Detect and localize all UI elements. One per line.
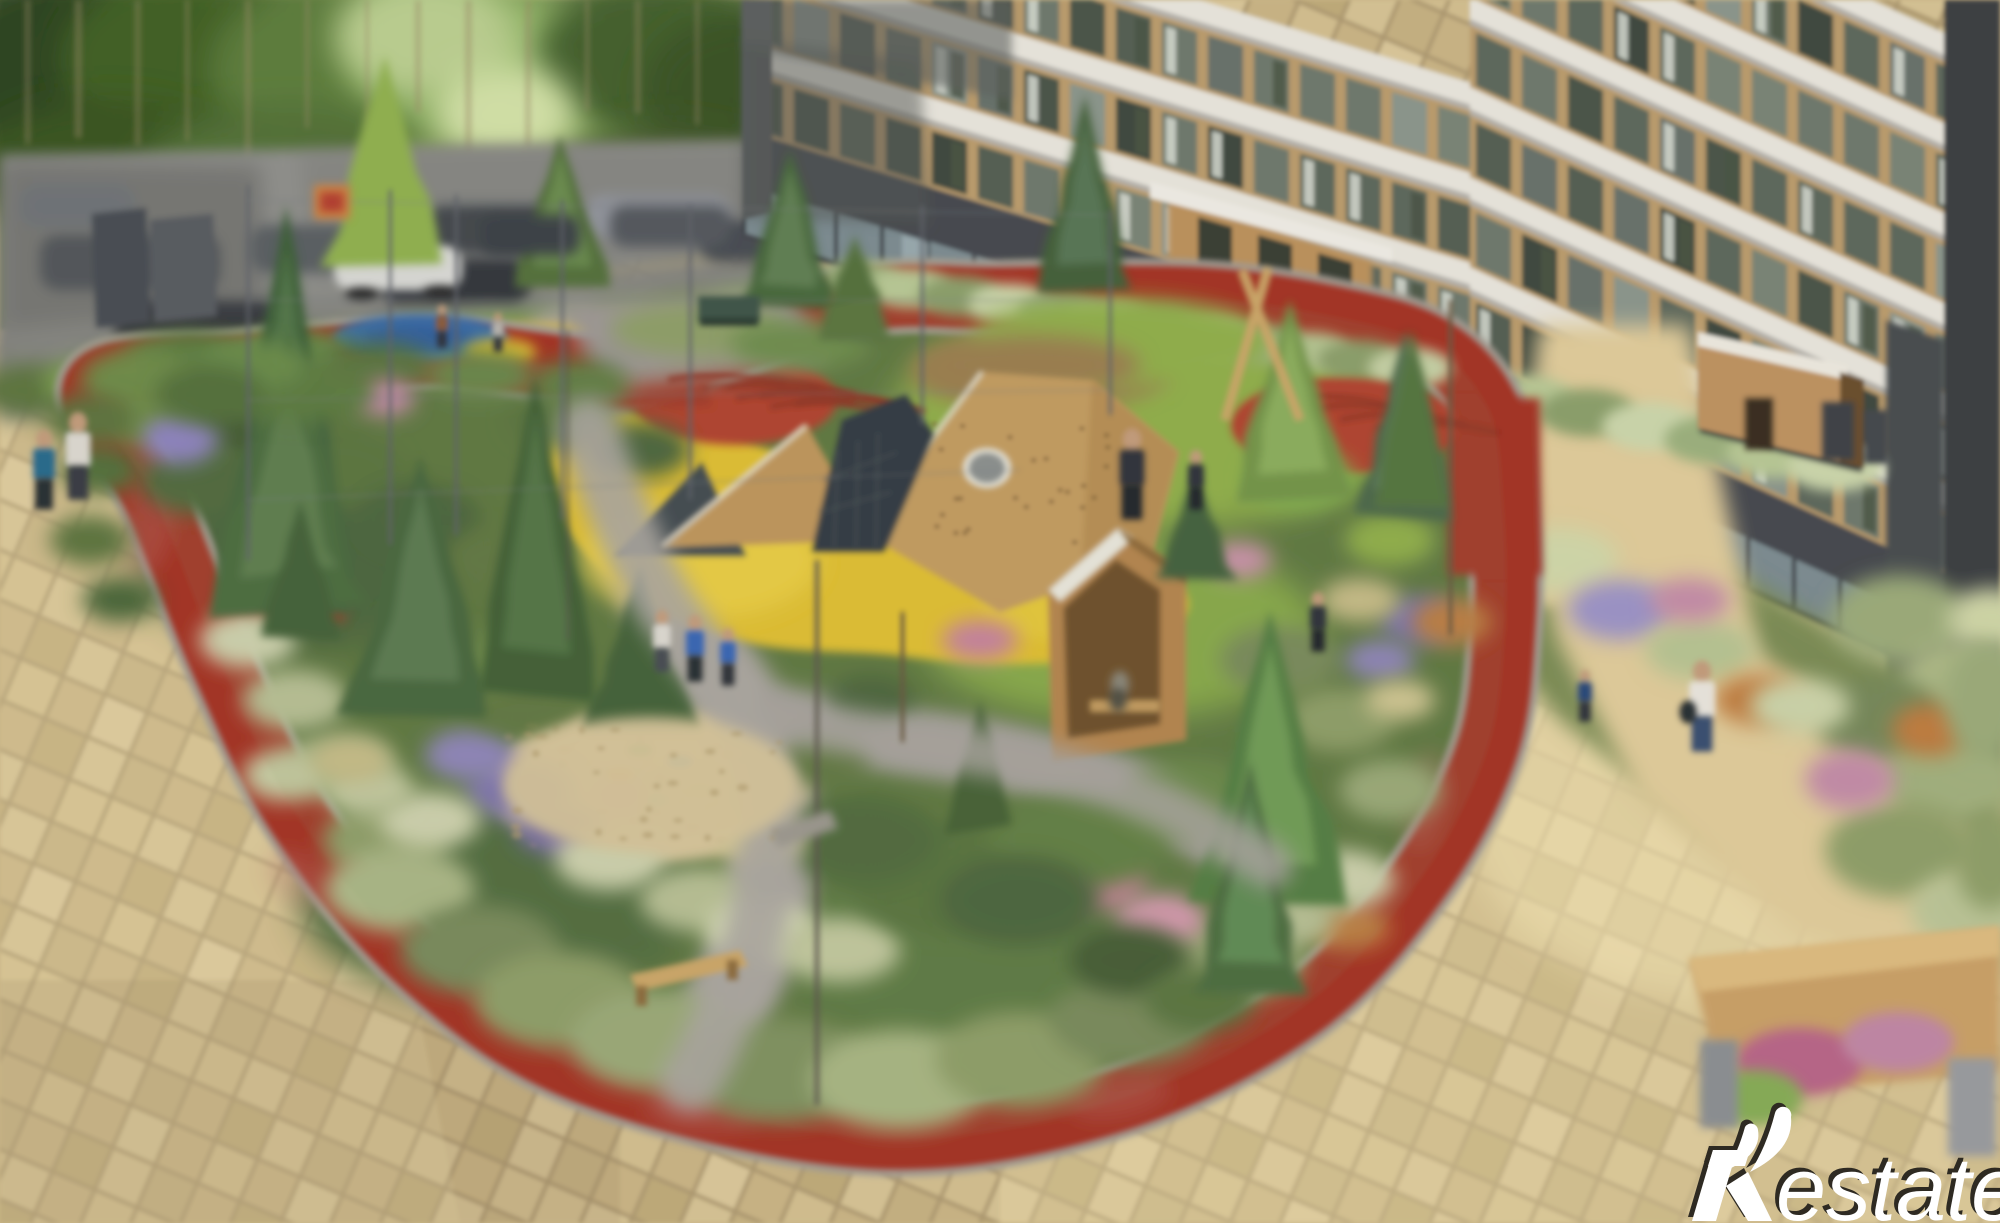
svg-text:estate: estate xyxy=(1776,1140,2000,1223)
